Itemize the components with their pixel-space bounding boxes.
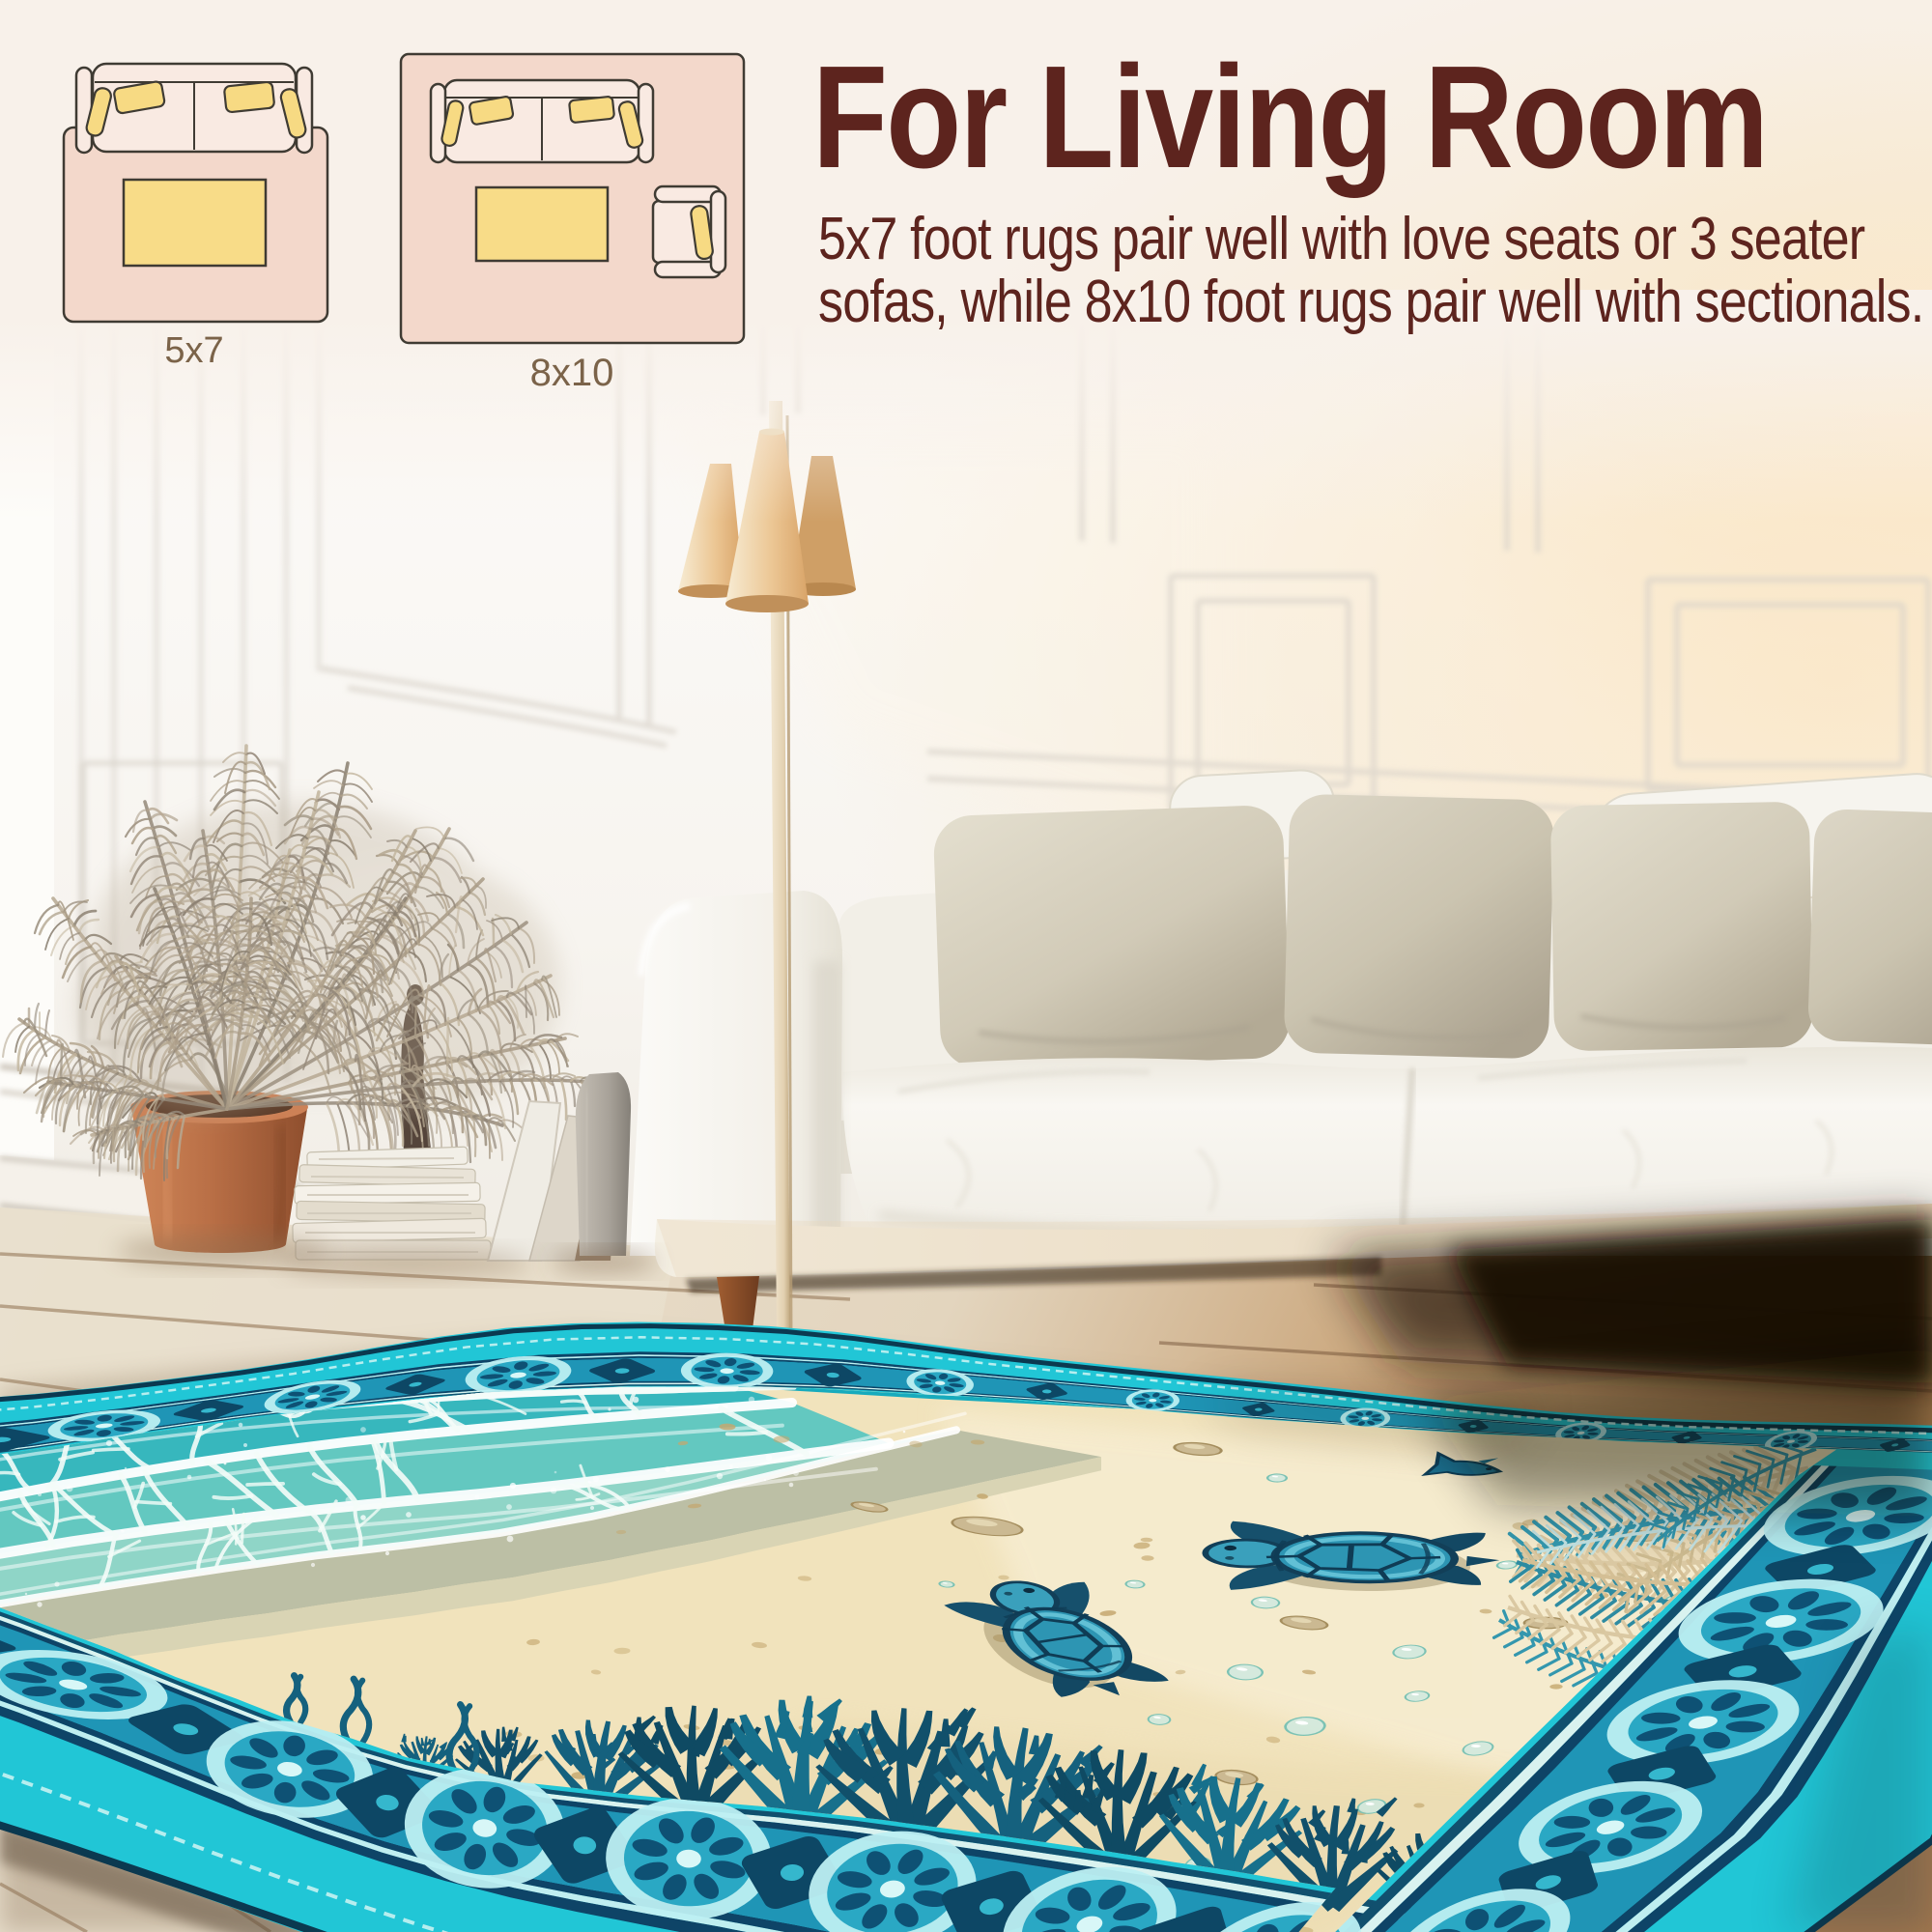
svg-text:5x7: 5x7 [164, 330, 223, 371]
svg-text:8x10: 8x10 [530, 352, 614, 394]
